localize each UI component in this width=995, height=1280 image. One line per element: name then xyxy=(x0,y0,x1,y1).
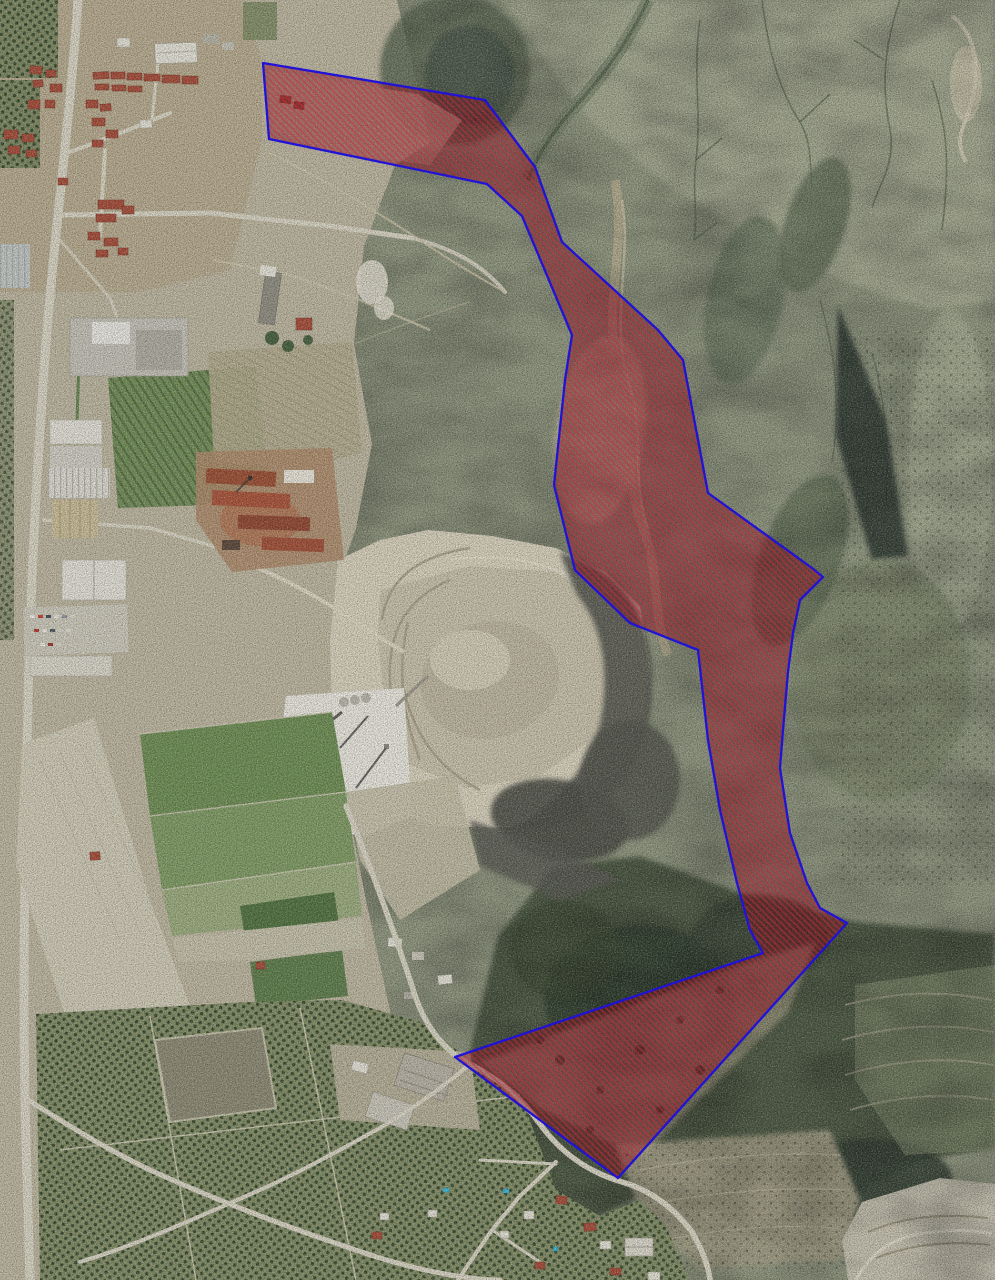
screenshot-root xyxy=(0,0,995,1280)
aerial-map-canvas[interactable] xyxy=(0,0,995,1280)
